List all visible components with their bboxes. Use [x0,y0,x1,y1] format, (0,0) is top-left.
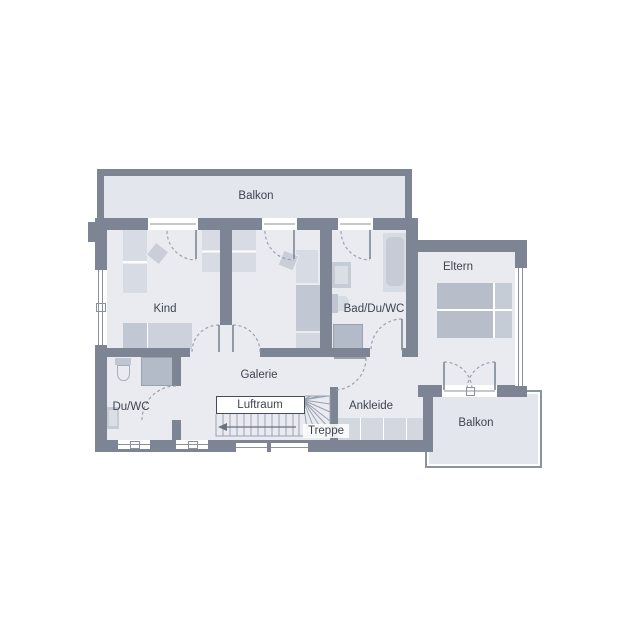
luftraum-box: Luftraum [216,396,305,414]
door-arc-child2 [233,325,260,352]
window-glazing-lines [99,224,523,448]
room-label-luftraum: Luftraum [217,398,303,412]
room-label-bad-du-wc: Bad/Du/WC [334,302,414,316]
room-label-balkon-bottom: Balkon [446,416,506,430]
floor-plan: Luftraum [0,0,636,636]
room-label-balkon-top: Balkon [226,189,286,203]
door-arc-balcony-kind [167,231,196,260]
door-arc-balcony-child2 [265,231,294,260]
room-label-kind: Kind [135,302,195,316]
room-label-eltern: Eltern [428,260,488,274]
room-label-ankleide: Ankleide [341,399,401,413]
door-arc-kind [192,325,219,352]
plan-annotations [0,0,636,636]
door-arc-bad [371,319,402,350]
door-arc-ankleide [334,358,366,390]
room-label-treppe: Treppe [303,424,349,438]
room-label-galerie: Galerie [229,368,289,382]
door-arc-balcony-bad [341,231,370,260]
room-label-du-wc: Du/WC [101,400,161,414]
stairs-steps [223,414,293,436]
